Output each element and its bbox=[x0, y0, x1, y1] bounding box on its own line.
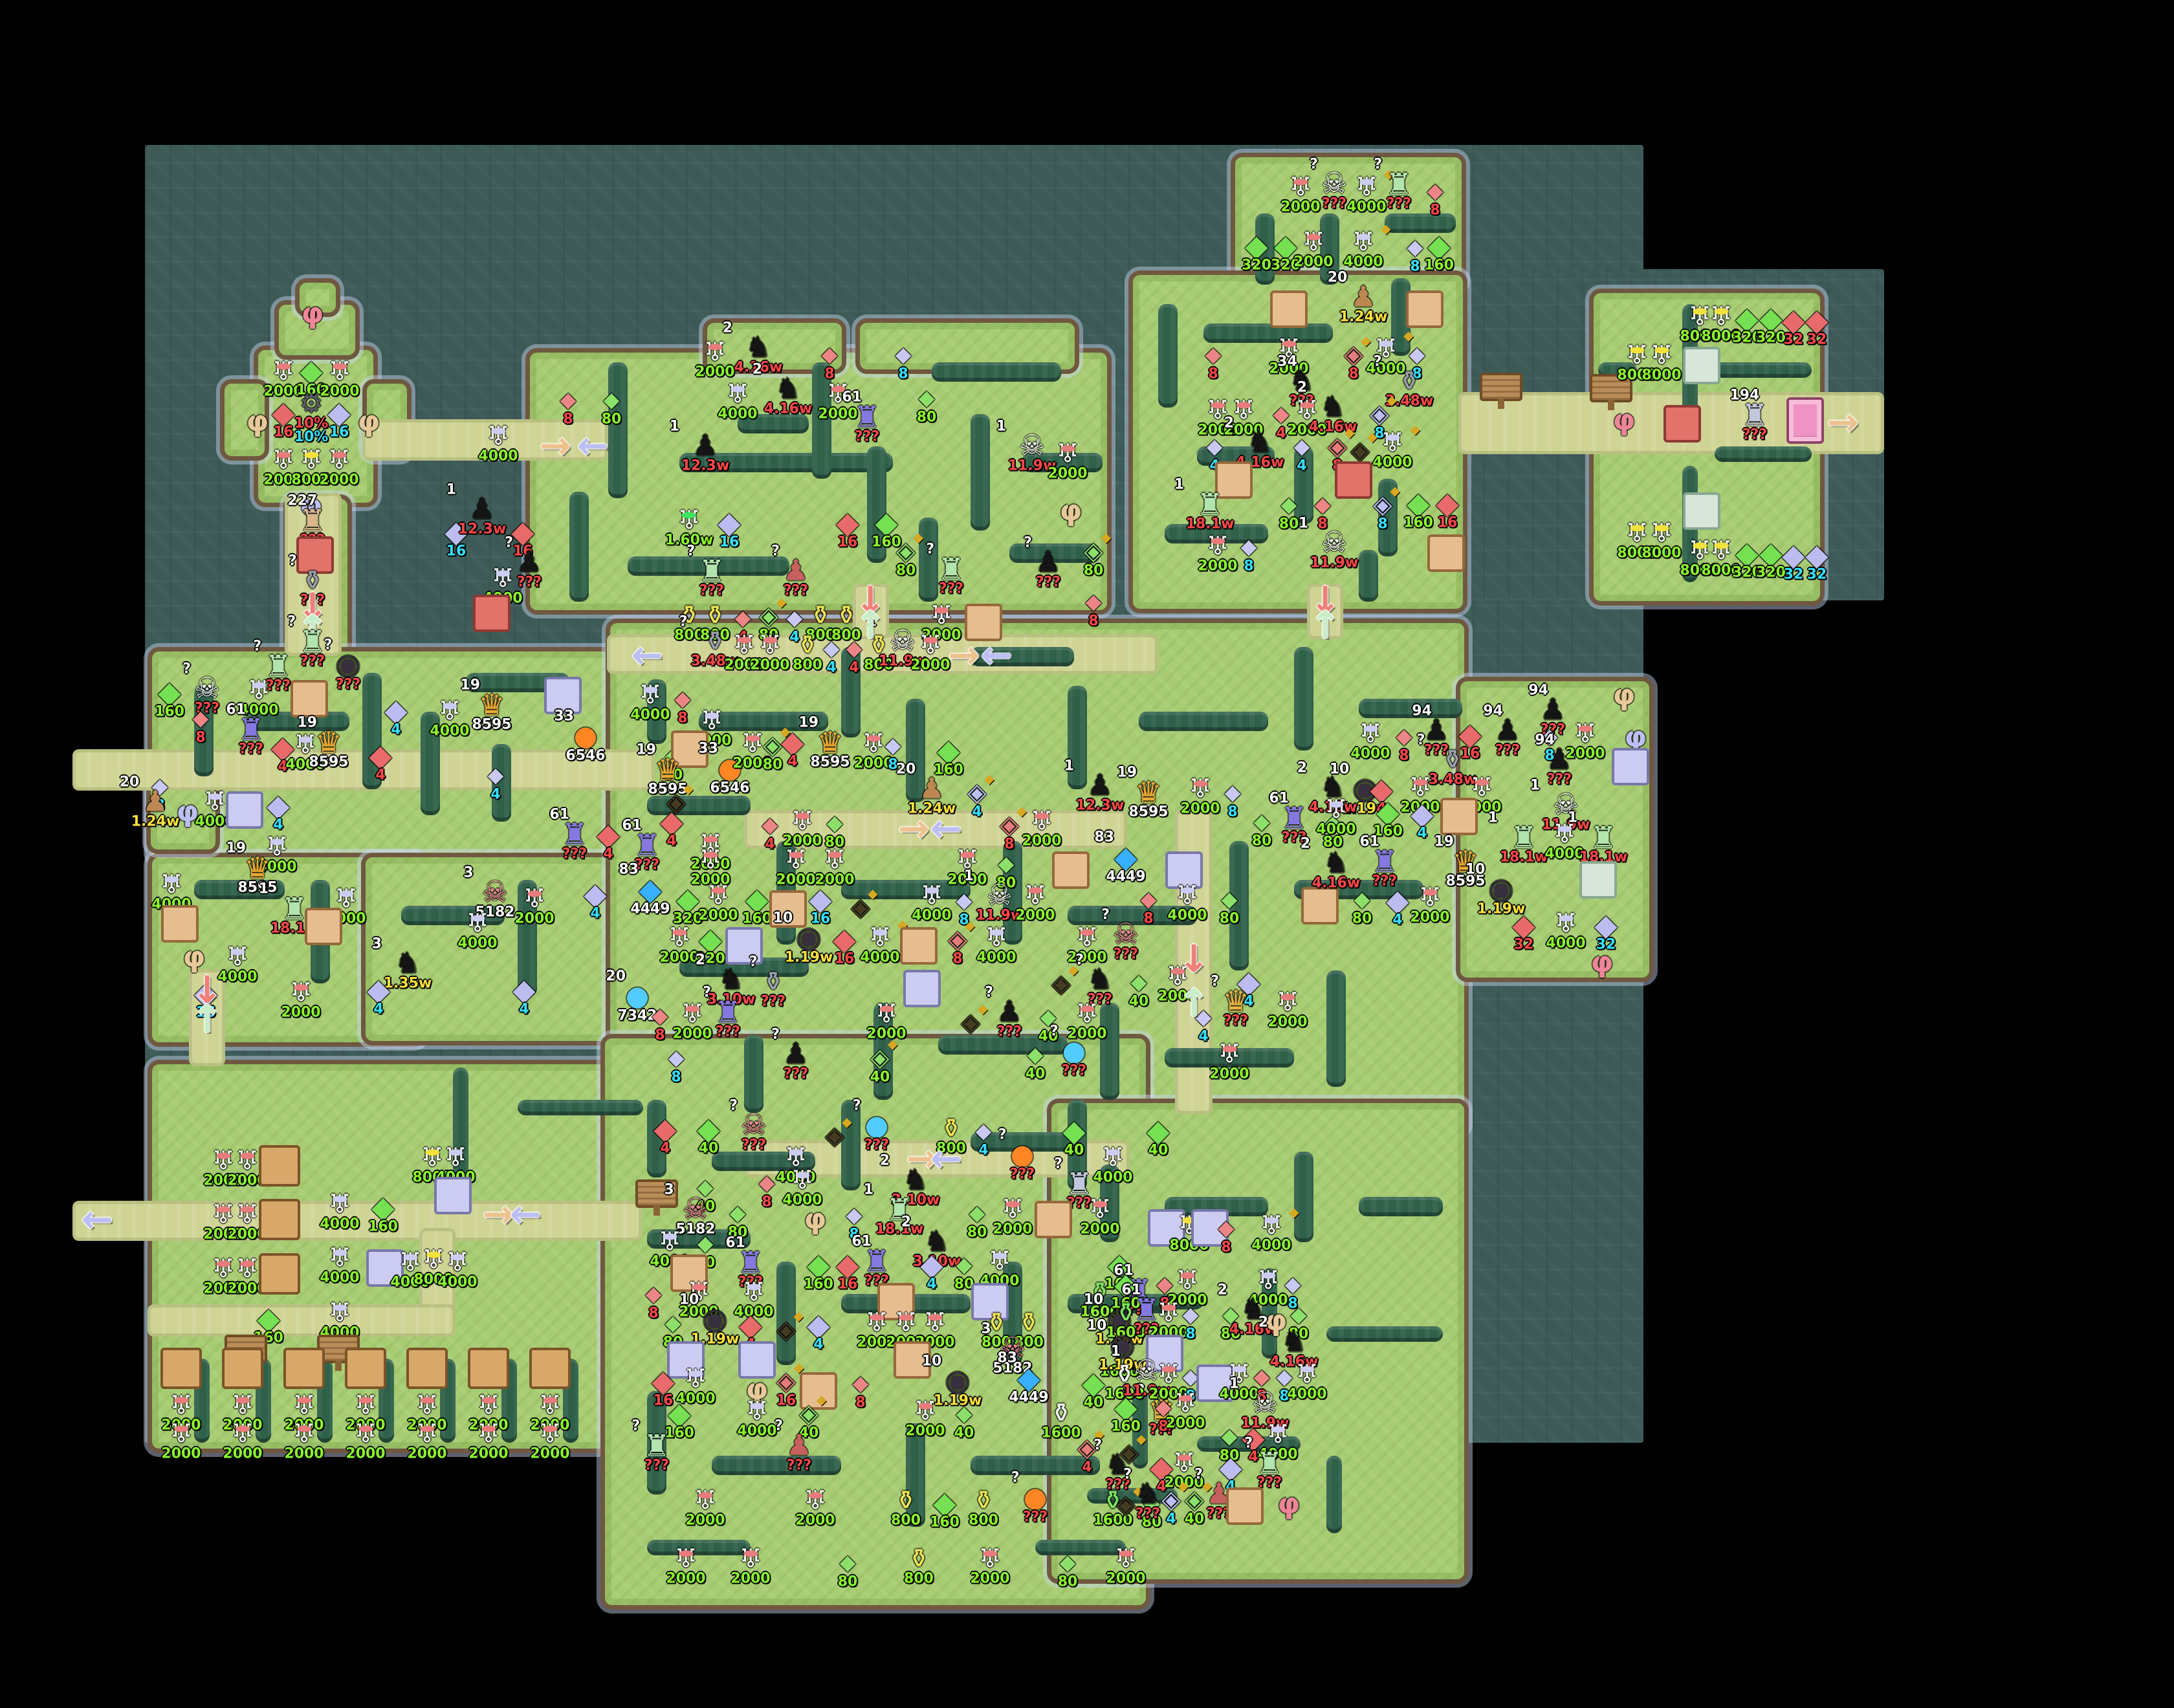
entity-gem_lav_fl[interactable]: ◆4 bbox=[1294, 433, 1310, 474]
entity-value-label: 2000 bbox=[468, 1447, 508, 1462]
entity-gem_red_big[interactable]: ◆16 bbox=[272, 399, 294, 440]
entity-fire[interactable]: ?●??? bbox=[1023, 1484, 1048, 1525]
entity-gate_tan[interactable] bbox=[1270, 290, 1308, 328]
entity-taunt_green[interactable]: ◈◆40 bbox=[870, 1044, 890, 1085]
entity-gem_red_big[interactable]: ◆4 bbox=[597, 821, 619, 862]
entity-crate[interactable] bbox=[160, 1348, 202, 1389]
entity-skel_red[interactable]: ?☠??? bbox=[1113, 921, 1138, 962]
entity-gem_red_fl[interactable]: ◆8 bbox=[822, 341, 838, 382]
entity-key_tan[interactable]: φ bbox=[358, 408, 380, 435]
entity-skel_mage[interactable]: 1☠11.9w bbox=[1310, 530, 1359, 571]
entity-crate[interactable] bbox=[529, 1348, 571, 1389]
entity-chal_red[interactable]: ♅2000 bbox=[1280, 174, 1320, 215]
entity-chal_red[interactable]: ♅2000 bbox=[346, 1421, 385, 1462]
entity-gem_lav_big[interactable]: ◆4 bbox=[512, 976, 535, 1017]
entity-chal_lav[interactable]: ♅4000 bbox=[976, 925, 1016, 965]
entity-crystal_blue[interactable]: 83◆4449 bbox=[630, 876, 670, 917]
entity-golem_green[interactable]: ?♜??? bbox=[1256, 1450, 1282, 1491]
entity-crate[interactable] bbox=[468, 1348, 509, 1389]
entity-chal_lav[interactable]: ♅4000 bbox=[1316, 796, 1356, 837]
entity-gate_red[interactable] bbox=[1663, 405, 1701, 443]
entity-flask_yellow[interactable]: ⚱800 bbox=[891, 1487, 921, 1528]
entity-gem_lav_big[interactable]: ◆4 bbox=[267, 792, 289, 833]
entity-imp[interactable]: 2♞4.16w bbox=[1312, 850, 1361, 891]
entity-chal_lav[interactable]: ♅4000 bbox=[1287, 1361, 1326, 1402]
entity-lion_gold[interactable]: ?♛??? bbox=[1222, 988, 1249, 1029]
entity-chal_lav[interactable]: ♅4000 bbox=[630, 682, 670, 723]
entity-gate_tan[interactable] bbox=[161, 905, 199, 943]
entity-gem_green_big[interactable]: ◆160 bbox=[368, 1194, 398, 1234]
entity-gem_green_big[interactable]: ◆160 bbox=[934, 737, 963, 778]
entity-golem_purple[interactable]: 61♜??? bbox=[237, 716, 264, 757]
entity-gem_green_fl[interactable]: ◆80 bbox=[917, 384, 937, 425]
entity-key_tan[interactable]: φ bbox=[247, 408, 269, 435]
entity-chal_red[interactable]: ♅2000 bbox=[672, 1001, 712, 1042]
entity-chal_red[interactable]: ♅2000 bbox=[782, 808, 822, 849]
entity-chal_red[interactable]: ♅2000 bbox=[695, 339, 734, 380]
entity-chal_lav[interactable]: ♅4000 bbox=[718, 381, 757, 422]
entity-gem_red_fl[interactable]: ◆8 bbox=[853, 1370, 869, 1410]
entity-tchal_lav[interactable]: ♅◆4000 bbox=[860, 925, 899, 965]
entity-warrior[interactable]: ?♟??? bbox=[786, 1432, 811, 1473]
entity-chal_red[interactable]: ♅2000 bbox=[659, 925, 699, 965]
entity-gem_red_big[interactable]: ◆4 bbox=[781, 728, 804, 769]
entity-gem_green_big[interactable]: ◆320 bbox=[1242, 232, 1271, 273]
entity-gate_tan[interactable] bbox=[1406, 290, 1444, 328]
entity-golem_purple[interactable]: 61♜??? bbox=[561, 821, 587, 862]
entity-knight_black[interactable]: ?♟??? bbox=[996, 999, 1022, 1040]
entity-binoc[interactable]: ⚙10%10% bbox=[294, 390, 329, 444]
entity-gem_lav_fl[interactable]: ◆8 bbox=[1183, 1301, 1199, 1342]
entity-gem_lav_big[interactable]: ◆4 bbox=[367, 976, 390, 1017]
entity-gate_lav[interactable] bbox=[434, 1177, 472, 1214]
entity-key_red[interactable]: φ bbox=[1278, 1491, 1300, 1518]
entity-chal_red[interactable]: ♅2000 bbox=[1022, 808, 1061, 849]
entity-chal_lav[interactable]: ♅4000 bbox=[1093, 1144, 1132, 1185]
entity-taunt_lav[interactable]: ◈◆4 bbox=[967, 779, 986, 820]
entity-gem_red_fl[interactable]: ◆8 bbox=[646, 1280, 662, 1321]
entity-gate_tan[interactable] bbox=[1427, 534, 1465, 572]
entity-taunt_red[interactable]: ◈◆8 bbox=[948, 926, 967, 967]
entity-gem_lav_fl[interactable]: ◆8 bbox=[668, 1044, 685, 1085]
entity-gate_red[interactable] bbox=[473, 595, 511, 632]
entity-golem_purple[interactable]: ?♜??? bbox=[714, 999, 741, 1040]
entity-gem_red_fl[interactable]: ◆8 bbox=[1218, 1214, 1235, 1255]
entity-crate[interactable] bbox=[259, 1199, 300, 1240]
entity-gem_green_big[interactable]: ◆320 bbox=[1756, 540, 1786, 580]
entity-golem_green[interactable]: ?♜??? bbox=[698, 558, 725, 598]
key-tan-icon: φ bbox=[1060, 498, 1082, 525]
entity-gate_tan[interactable] bbox=[291, 680, 328, 717]
entity-gem_lav_fl[interactable]: ◆8 bbox=[895, 341, 912, 382]
entity-gem_red_fl[interactable]: ◆8 bbox=[1141, 886, 1157, 926]
entity-chal_red[interactable]: ♅2000 bbox=[1015, 882, 1055, 923]
entity-taunt_green[interactable]: ◈◆80 bbox=[896, 538, 916, 578]
entity-gem_red_big[interactable]: ◆32 bbox=[1782, 307, 1805, 347]
entity-golem_purple[interactable]: 61♜??? bbox=[853, 404, 880, 444]
entity-golem_green[interactable]: ?♜??? bbox=[938, 556, 964, 597]
entity-gate_tan[interactable] bbox=[1440, 798, 1478, 835]
entity-taunt_red[interactable]: ◈◆16 bbox=[776, 1368, 796, 1408]
entity-arrow_down[interactable]: ↓ bbox=[1178, 943, 1210, 975]
entity-arrow_left[interactable]: ← bbox=[930, 812, 962, 844]
entity-knight_black[interactable]: ?♟??? bbox=[1035, 549, 1060, 590]
entity-gem_lav_big[interactable]: ◆32 bbox=[1805, 542, 1828, 582]
entity-gem_lav_big[interactable]: ◆16 bbox=[718, 509, 740, 550]
entity-gate_tan[interactable] bbox=[1301, 887, 1339, 925]
entity-chal_red[interactable]: ♅2000 bbox=[1198, 533, 1237, 574]
entity-gate_pale[interactable] bbox=[1579, 861, 1617, 899]
entity-chal_lav[interactable]: ♅4000 bbox=[737, 1398, 776, 1439]
gem-green-fl-icon: ◆ bbox=[838, 1549, 858, 1576]
entity-gem_green_fl[interactable]: ◆40 bbox=[1129, 969, 1149, 1009]
entity-chal_lav[interactable]: ♅4000 bbox=[320, 1245, 359, 1286]
entity-knight_black[interactable]: 1♟12.3w bbox=[458, 496, 507, 537]
entity-robot[interactable]: 194♜??? bbox=[1741, 402, 1768, 443]
entity-gem_red_big[interactable]: ◆16 bbox=[833, 926, 855, 967]
entity-chal_red[interactable]: ♅2000 bbox=[970, 1546, 1009, 1586]
entity-taunt_red[interactable]: ◈◆8 bbox=[1000, 811, 1018, 852]
entity-chal_lav[interactable]: ♅4000 bbox=[320, 1191, 359, 1232]
entity-gem_green_big[interactable]: ◆160 bbox=[804, 1251, 833, 1292]
entity-chal_red[interactable]: ♅2000 bbox=[284, 1421, 324, 1462]
entity-chal_lav[interactable]: ♅4000 bbox=[437, 1249, 477, 1290]
entity-knight_black[interactable]: 94♟??? bbox=[1546, 747, 1572, 787]
entity-giant_gold[interactable]: 19♛8595 bbox=[810, 729, 850, 770]
entity-arrow_left[interactable]: ← bbox=[631, 639, 663, 671]
entity-gem_green_big[interactable]: ◆160 bbox=[742, 886, 772, 926]
entity-count-label: ? bbox=[771, 545, 780, 559]
entity-chal_red[interactable]: ♅2000 bbox=[1165, 1390, 1205, 1431]
entity-imp[interactable]: ?♞??? bbox=[1135, 1481, 1160, 1522]
entity-gem_red_big[interactable]: ◆16 bbox=[836, 1251, 859, 1292]
entity-chal_red[interactable]: ♅2000 bbox=[698, 882, 738, 923]
entity-gem_green_big[interactable]: ◆160 bbox=[1373, 798, 1403, 839]
entity-chal_red[interactable]: ♅2000 bbox=[1180, 776, 1220, 816]
entity-crate[interactable] bbox=[259, 1145, 300, 1187]
entity-crate[interactable] bbox=[283, 1348, 325, 1389]
entity-gem_green_fl[interactable]: ◆80 bbox=[1220, 886, 1240, 926]
entity-key_tan[interactable]: φ bbox=[1060, 498, 1082, 525]
entity-chal_red[interactable]: ♅2000 bbox=[730, 1546, 770, 1586]
entity-gem_green_fl[interactable]: ◆40 bbox=[1026, 1041, 1046, 1082]
entity-sign[interactable] bbox=[1480, 373, 1522, 401]
entity-key_red[interactable]: φ bbox=[1591, 949, 1613, 976]
entity-arrow_right[interactable]: → bbox=[1827, 406, 1859, 438]
entity-golem_green[interactable]: ?♜??? bbox=[265, 653, 291, 694]
entity-gem_lav_big[interactable]: ◆16 bbox=[327, 399, 350, 440]
entity-slime[interactable]: ?●??? bbox=[864, 1112, 889, 1153]
entity-gem_green_big[interactable]: ◆160 bbox=[1424, 232, 1454, 273]
entity-eye[interactable]: 10◉1.19w bbox=[785, 925, 833, 965]
entity-gem_lav_fl[interactable]: ◆4 bbox=[976, 1117, 992, 1158]
entity-key_tan[interactable]: φ bbox=[804, 1206, 826, 1233]
entity-key_tan[interactable]: φ bbox=[1613, 682, 1635, 709]
entity-chal_red[interactable]: ♅2000 bbox=[407, 1421, 446, 1462]
entity-chal_red[interactable]: ♅2000 bbox=[910, 632, 950, 673]
entity-golem_green[interactable]: ?♜??? bbox=[1385, 171, 1412, 212]
entity-chal_lav[interactable]: ♅4000 bbox=[430, 698, 469, 739]
entity-taunt_red[interactable]: ◈◆8 bbox=[1344, 341, 1363, 382]
entity-value-label: 8595 bbox=[237, 881, 277, 895]
entity-chal_red[interactable]: ♅2000 bbox=[223, 1421, 262, 1462]
entity-gem_lav_big[interactable]: ◆4 bbox=[807, 1311, 829, 1352]
entity-taunt_lav[interactable]: ◈◆4 bbox=[1161, 1486, 1180, 1527]
entity-gem_green_fl[interactable]: ◆80 bbox=[1252, 808, 1272, 849]
chalice-fill bbox=[682, 512, 696, 519]
entity-chal_green[interactable]: ♅1.60w bbox=[665, 507, 714, 548]
entity-flask_yellow[interactable]: ⚱800 bbox=[793, 632, 822, 673]
entity-gate_red[interactable] bbox=[1335, 461, 1372, 499]
chalice-fill bbox=[708, 344, 722, 351]
entity-chal_red[interactable]: ♅2000 bbox=[319, 447, 358, 488]
entity-gem_lav_fl[interactable]: ◆4 bbox=[488, 761, 504, 802]
entity-taunt_dark[interactable]: ◈◆ bbox=[776, 1316, 795, 1343]
entity-imp[interactable]: 2♞4.16w bbox=[764, 376, 813, 417]
entity-gem_red_big[interactable]: ◆16 bbox=[836, 509, 859, 550]
entity-gate_pale[interactable] bbox=[1683, 347, 1720, 384]
entity-gem_green_fl[interactable]: ◆40 bbox=[954, 1400, 974, 1441]
entity-chal_red[interactable]: ♅2000 bbox=[1048, 441, 1087, 481]
entity-knight_black[interactable]: ?♟??? bbox=[783, 1041, 808, 1082]
entity-key_lav[interactable]: φ bbox=[1625, 724, 1647, 751]
entity-crystal_blue[interactable]: 83◆4449 bbox=[1106, 844, 1145, 884]
entity-crystal_blue[interactable]: 83◆4449 bbox=[1009, 1364, 1048, 1405]
entity-gem_green_fl[interactable]: ◆80 bbox=[825, 809, 845, 850]
entity-flask_white[interactable]: ⚱1600 bbox=[1041, 1400, 1081, 1441]
entity-gem_red_big[interactable]: ◆32 bbox=[1512, 912, 1535, 952]
entity-gem_green_big[interactable]: ◆320 bbox=[1756, 305, 1786, 345]
entity-giant_gold[interactable]: 19♛8595 bbox=[309, 729, 348, 770]
entity-tchal_lav[interactable]: ♅◆4000 bbox=[1346, 174, 1386, 215]
entity-flask_yellow[interactable]: ⚱800 bbox=[969, 1487, 998, 1528]
entity-tchal_lav[interactable]: ♅◆4000 bbox=[1251, 1212, 1291, 1253]
entity-chal_lav[interactable]: ♅4000 bbox=[478, 423, 518, 464]
entity-arrow_right[interactable]: → bbox=[949, 639, 980, 671]
entity-golem_green[interactable]: 1♜18.1w bbox=[1500, 824, 1548, 865]
entity-chal_red[interactable]: ♅2000 bbox=[866, 1001, 906, 1042]
entity-chal_red[interactable]: ♅2000 bbox=[1209, 1041, 1249, 1082]
entity-gem_red_fl[interactable]: ◆8 bbox=[193, 705, 209, 745]
entity-arrow_up[interactable]: ↑ bbox=[855, 609, 886, 641]
chalice-fill bbox=[1161, 1366, 1176, 1373]
entity-gem_lav_big[interactable]: ◆4 bbox=[920, 1251, 943, 1292]
entity-crate[interactable] bbox=[406, 1348, 448, 1389]
entity-gate_pale[interactable] bbox=[1683, 492, 1720, 530]
entity-gem_lav_fl[interactable]: ◆8 bbox=[1241, 533, 1257, 574]
entity-tchal_lav[interactable]: ♅◆4000 bbox=[1343, 229, 1383, 270]
entity-giant_gold[interactable]: 19♛8595 bbox=[472, 692, 511, 732]
entity-gem_red_big[interactable]: ◆32 bbox=[1805, 307, 1828, 347]
entity-chal_red[interactable]: ♅2000 bbox=[468, 1421, 508, 1462]
entity-fire[interactable]: 33●6546 bbox=[565, 723, 605, 763]
entity-golem_green[interactable]: ?♜??? bbox=[643, 1432, 670, 1473]
entity-arrow_up[interactable]: ↑ bbox=[1310, 609, 1341, 641]
entity-chal_red[interactable]: ♅2000 bbox=[530, 1421, 569, 1462]
entity-crate[interactable] bbox=[259, 1253, 300, 1295]
entity-taunt_dark[interactable]: ◈◆ bbox=[1051, 970, 1070, 997]
entity-gem_green_big[interactable]: ◆40 bbox=[1062, 1117, 1085, 1158]
entity-giant_gold[interactable]: 19♛8595 bbox=[237, 855, 277, 895]
entity-arrow_left[interactable]: ← bbox=[510, 1198, 542, 1230]
entity-gem_red_fl[interactable]: ◆4 bbox=[762, 811, 778, 852]
entity-taunt_dark[interactable]: ◈◆ bbox=[1116, 1491, 1135, 1518]
entity-gem_lav_big[interactable]: ◆4 bbox=[584, 881, 606, 921]
entity-chal_red[interactable]: ♅2000 bbox=[514, 886, 554, 926]
entity-fire[interactable]: ?●??? bbox=[1010, 1141, 1035, 1182]
entity-arrow_right[interactable]: → bbox=[540, 429, 571, 461]
entity-gem_red_fl[interactable]: ◆8 bbox=[1205, 341, 1222, 382]
entity-gem_red_fl[interactable]: ◆8 bbox=[1396, 723, 1412, 763]
entity-golem_purple[interactable]: 61♜??? bbox=[1371, 848, 1398, 889]
entity-chal_gold[interactable]: ♅8000 bbox=[1641, 342, 1681, 383]
entity-arrow_up[interactable]: ↑ bbox=[192, 1003, 223, 1035]
entity-chal_lav[interactable]: ♅4000 bbox=[1167, 882, 1207, 923]
entity-arrow_left[interactable]: ← bbox=[981, 639, 1013, 671]
entity-chal_lav[interactable]: ♅4000 bbox=[217, 944, 257, 985]
entity-gate_tan[interactable] bbox=[900, 927, 938, 965]
entity-gem_red_big[interactable]: ◆4 bbox=[653, 1115, 676, 1156]
entity-chal_red[interactable]: ♅2000 bbox=[1268, 989, 1307, 1030]
entity-golem_green[interactable]: ?♜??? bbox=[299, 628, 325, 669]
entity-chal_red[interactable]: ♅2000 bbox=[750, 632, 789, 673]
entity-gem_green_fl[interactable]: ◆80 bbox=[967, 1199, 987, 1240]
entity-gem_green_big[interactable]: ◆40 bbox=[1082, 1370, 1104, 1410]
entity-knight_black[interactable]: 1♟12.3w bbox=[681, 433, 730, 474]
entity-imp[interactable]: 3♞1.35w bbox=[384, 950, 432, 991]
entity-taunt_green[interactable]: ◈◆40 bbox=[1185, 1486, 1205, 1527]
entity-gem_red_fl[interactable]: ◆8 bbox=[1315, 491, 1331, 532]
entity-giant_gold[interactable]: 19♛8595 bbox=[1128, 779, 1168, 820]
entity-monkey[interactable]: 20♟1.24w bbox=[1339, 284, 1388, 325]
entity-chal_lav[interactable]: ♅4000 bbox=[1546, 910, 1585, 951]
knight-black-icon: ♟ bbox=[996, 999, 1022, 1026]
entity-taunt_dark[interactable]: ◈◆ bbox=[961, 1009, 980, 1036]
entity-taunt_green[interactable]: ◈◆80 bbox=[1084, 538, 1104, 578]
entity-gem_green_fl[interactable]: ◆80 bbox=[728, 1199, 748, 1240]
entity-gate_tan[interactable] bbox=[305, 908, 342, 945]
entity-skel_red[interactable]: ?☠??? bbox=[741, 1112, 766, 1153]
entity-gem_lav_big[interactable]: ◆16 bbox=[809, 886, 831, 926]
entity-gem_green_fl[interactable]: ◆80 bbox=[838, 1549, 858, 1590]
entity-skel_mage[interactable]: ?☠??? bbox=[1321, 171, 1346, 212]
entity-gem_lav_fl[interactable]: ◆8 bbox=[1407, 234, 1423, 274]
entity-key_red[interactable]: φ bbox=[302, 300, 324, 327]
entity-chal_red[interactable]: ♅2000 bbox=[1410, 884, 1449, 925]
entity-gem_lav_fl[interactable]: ◆4 bbox=[824, 635, 840, 675]
entity-gem_green_big[interactable]: ◆160 bbox=[930, 1489, 960, 1530]
entity-chal_gold[interactable]: ♅8000 bbox=[1641, 520, 1681, 561]
entity-slime[interactable]: ?●??? bbox=[1062, 1038, 1086, 1078]
entity-gem_lav_big[interactable]: ◆4 bbox=[1411, 800, 1433, 841]
entity-gate_tan[interactable] bbox=[1226, 1487, 1264, 1525]
entity-gem_red_big[interactable]: ◆4 bbox=[660, 808, 683, 849]
entity-gem_lav_fl[interactable]: ◆8 bbox=[1225, 779, 1241, 820]
entity-gem_red_big[interactable]: ◆4 bbox=[369, 742, 391, 783]
entity-gem_red_fl[interactable]: ◆8 bbox=[1427, 177, 1444, 218]
entity-arrow_left[interactable]: ← bbox=[577, 429, 609, 461]
entity-chal_lav[interactable]: ♅4000 bbox=[1350, 721, 1390, 761]
entity-gem_red_fl[interactable]: ◆8 bbox=[759, 1169, 775, 1210]
entity-gem_red_fl[interactable]: ◆8 bbox=[560, 386, 576, 427]
entity-arrow_up[interactable]: ↑ bbox=[1178, 987, 1210, 1019]
entity-taunt_dark[interactable]: ◈◆ bbox=[825, 1122, 844, 1149]
entity-arrow_right[interactable]: → bbox=[898, 812, 930, 844]
entity-key_red[interactable]: φ bbox=[1613, 407, 1635, 434]
entity-taunt_green[interactable]: ◈◆80 bbox=[763, 732, 783, 772]
entity-gem_green_big[interactable]: ◆40 bbox=[1147, 1117, 1169, 1158]
entity-taunt_dark[interactable]: ◈◆ bbox=[851, 893, 870, 921]
entity-chal_lav[interactable]: ♅4000 bbox=[457, 910, 497, 951]
entity-gate_tan[interactable] bbox=[1052, 851, 1090, 889]
entity-crate[interactable] bbox=[345, 1348, 386, 1389]
entity-chal_red[interactable]: ♅2000 bbox=[1293, 229, 1333, 270]
entity-slime[interactable]: 20●7342 bbox=[617, 983, 657, 1024]
chalice-fill bbox=[1654, 347, 1669, 354]
entity-chal_red[interactable]: ♅2000 bbox=[161, 1421, 201, 1462]
entity-gate_lav[interactable] bbox=[226, 791, 263, 829]
entity-chal_red[interactable]: ♅2000 bbox=[685, 1487, 725, 1528]
entity-gem_lav_big[interactable]: ◆4 bbox=[384, 697, 407, 738]
entity-gem_green_fl[interactable]: ◆80 bbox=[1058, 1549, 1078, 1590]
entity-gem_red_big[interactable]: ◆16 bbox=[1436, 490, 1458, 531]
entity-gem_green_big[interactable]: ◆40 bbox=[697, 1115, 719, 1156]
entity-taunt_lav[interactable]: ◈◆8 bbox=[1373, 491, 1392, 532]
entity-gem_red_fl[interactable]: ◆8 bbox=[1086, 588, 1102, 629]
entity-gem_green_fl[interactable]: ◆80 bbox=[1352, 886, 1372, 926]
entity-gem_green_fl[interactable]: ◆80 bbox=[602, 386, 622, 427]
entity-chal_red[interactable]: ♅2000 bbox=[666, 1546, 705, 1586]
entity-pot[interactable]: ?⚱??? bbox=[761, 969, 785, 1009]
entity-chal_red[interactable]: ♅2000 bbox=[795, 1487, 835, 1528]
entity-arrow_left[interactable]: ← bbox=[82, 1203, 113, 1235]
entity-chal_lav[interactable]: ♅4000 bbox=[782, 1167, 822, 1208]
entity-golem_green[interactable]: 1♜18.1w bbox=[1186, 491, 1235, 532]
entity-gem_green_big[interactable]: ◆160 bbox=[1403, 490, 1433, 531]
entity-crate[interactable] bbox=[222, 1348, 263, 1389]
entity-chal_red[interactable]: ♅2000 bbox=[281, 980, 320, 1020]
entity-gem_lav_big[interactable]: ◆4 bbox=[1386, 887, 1409, 928]
entity-knight_black[interactable]: 94♟??? bbox=[1495, 717, 1520, 758]
entity-eye[interactable]: ?◉??? bbox=[336, 651, 360, 692]
entity-monkey[interactable]: 20♟1.24w bbox=[131, 789, 180, 829]
entity-chal_red[interactable]: ♅2000 bbox=[993, 1196, 1032, 1237]
entity-gem_green_big[interactable]: ◆160 bbox=[155, 679, 184, 719]
entity-chal_red[interactable]: ♅2000 bbox=[1106, 1546, 1145, 1586]
entity-gem_red_fl[interactable]: ◆8 bbox=[675, 685, 691, 726]
entity-golem_green[interactable]: 1♜18.1w bbox=[1579, 824, 1628, 865]
entity-chal_lav[interactable]: ♅4000 bbox=[912, 882, 951, 923]
entity-chal_red[interactable]: ♅2000 bbox=[1067, 925, 1106, 965]
entity-chal_red[interactable]: ♅2000 bbox=[1080, 1196, 1119, 1237]
entity-gate_lav[interactable] bbox=[1612, 748, 1649, 785]
entity-chal_red[interactable]: ♅2000 bbox=[905, 1398, 945, 1439]
entity-taunt_dark[interactable]: ◈◆ bbox=[1350, 437, 1369, 464]
entity-key_tan[interactable]: φ bbox=[183, 944, 205, 971]
chal-red-icon: ♅ bbox=[530, 1421, 569, 1448]
entity-gate_tan[interactable] bbox=[1035, 1201, 1072, 1238]
entity-chal_lav[interactable]: ♅4000 bbox=[1544, 821, 1584, 862]
entity-warrior[interactable]: ?♟??? bbox=[783, 558, 808, 598]
entity-gem_lav_big[interactable]: ◆32 bbox=[1782, 542, 1805, 582]
entity-gem_green_fl[interactable]: ◆80 bbox=[1279, 491, 1299, 532]
entity-tchal_lav[interactable]: ♅◆4000 bbox=[1372, 430, 1412, 470]
entity-door_pink[interactable] bbox=[1786, 397, 1824, 444]
entity-flask_yellow[interactable]: ⚱800 bbox=[904, 1546, 934, 1586]
entity-gate_lav[interactable] bbox=[903, 970, 941, 1007]
entity-gem_green_big[interactable]: ◆160 bbox=[1111, 1394, 1141, 1434]
entity-gem_red_fl[interactable]: ◆8 bbox=[652, 1002, 668, 1043]
